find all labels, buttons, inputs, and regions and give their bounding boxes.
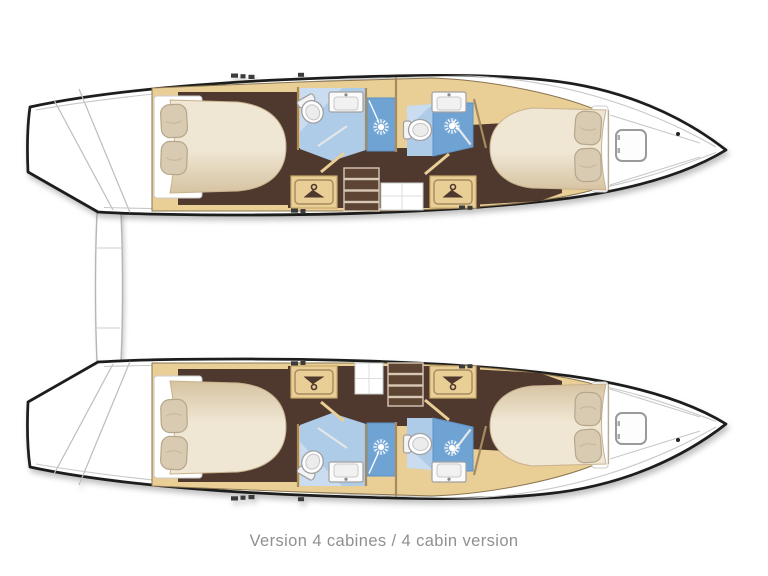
floorplan-canvas: Version 4 cabines / 4 cabin version [0, 0, 768, 576]
caption: Version 4 cabines / 4 cabin version [0, 532, 768, 551]
starboard-hull [27, 359, 726, 501]
galley-unit [355, 363, 383, 394]
port-hull [27, 73, 726, 215]
companionway-stairs [344, 168, 379, 211]
companionway-stairs [388, 363, 423, 406]
catamaran-floorplan [0, 0, 768, 576]
galley-unit [381, 183, 423, 210]
